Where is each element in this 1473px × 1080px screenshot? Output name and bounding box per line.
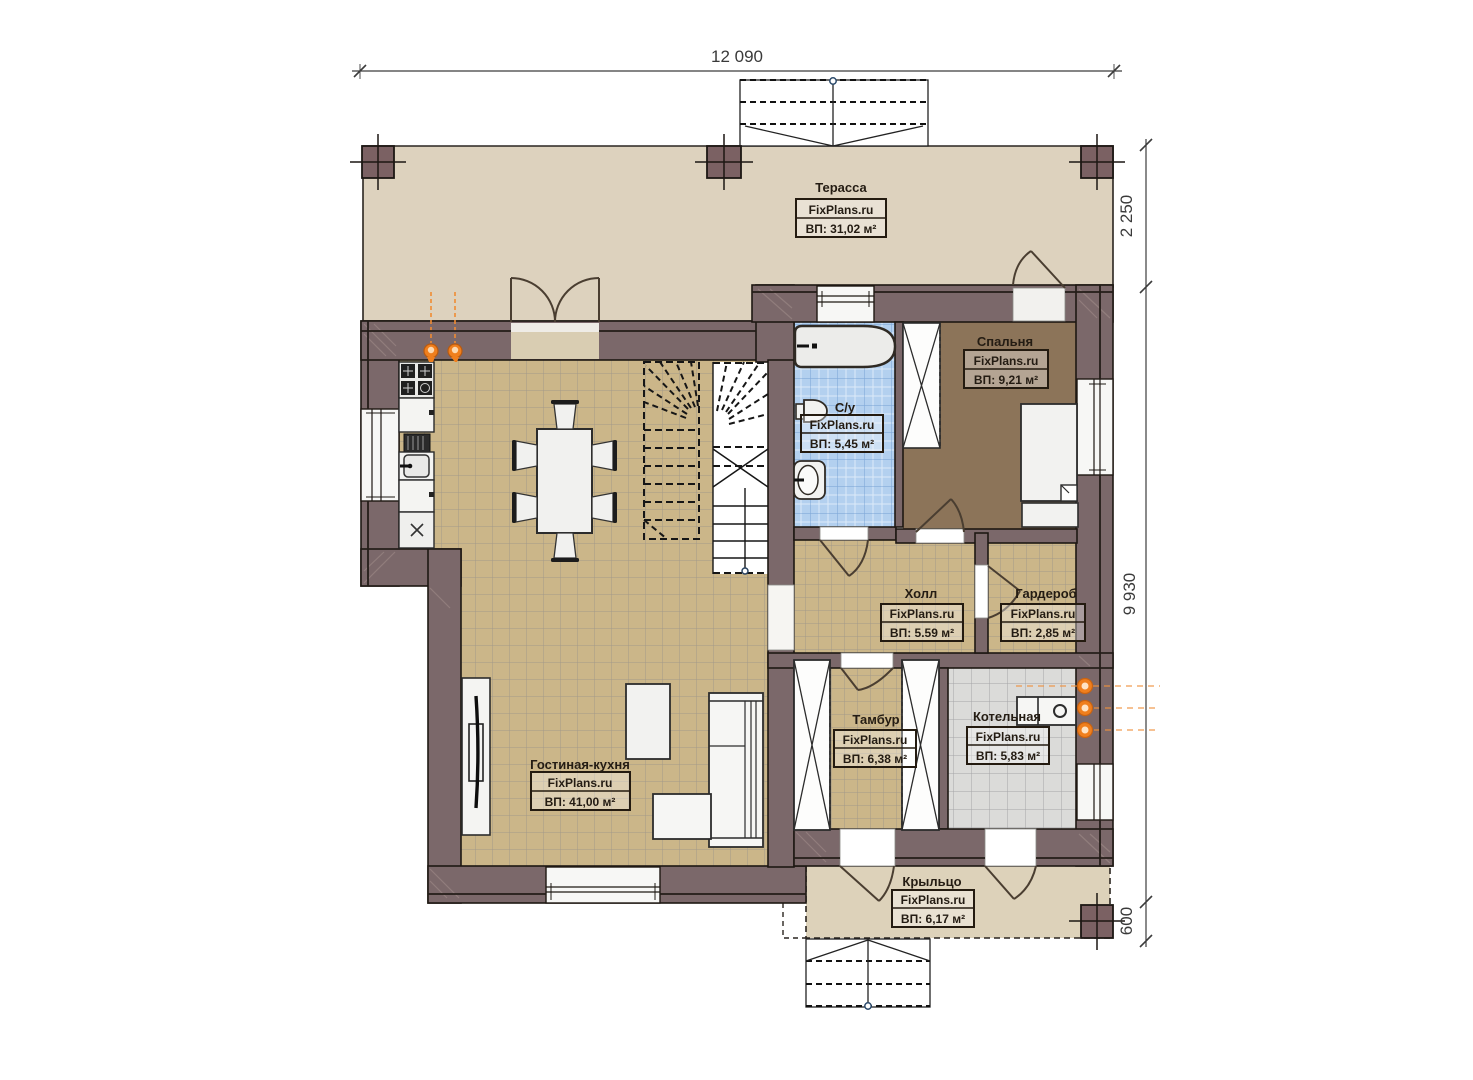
svg-text:2 250: 2 250 — [1117, 195, 1136, 238]
svg-text:ВП: 5.59 м²: ВП: 5.59 м² — [890, 626, 954, 640]
svg-text:Гостиная-кухня: Гостиная-кухня — [530, 757, 630, 772]
svg-text:FixPlans.ru: FixPlans.ru — [890, 607, 955, 621]
svg-text:FixPlans.ru: FixPlans.ru — [548, 776, 613, 790]
svg-text:ВП: 41,00 м²: ВП: 41,00 м² — [545, 795, 616, 809]
svg-text:12 090: 12 090 — [711, 47, 763, 66]
svg-text:ВП: 6,17 м²: ВП: 6,17 м² — [901, 912, 965, 926]
svg-text:FixPlans.ru: FixPlans.ru — [901, 893, 966, 907]
svg-text:Гардероб: Гардероб — [1015, 586, 1076, 601]
svg-text:FixPlans.ru: FixPlans.ru — [810, 418, 875, 432]
svg-text:ВП: 5,45 м²: ВП: 5,45 м² — [810, 437, 874, 451]
svg-text:FixPlans.ru: FixPlans.ru — [843, 733, 908, 747]
svg-text:ВП: 9,21 м²: ВП: 9,21 м² — [974, 373, 1038, 387]
svg-text:Холл: Холл — [905, 586, 938, 601]
svg-text:ВП: 31,02 м²: ВП: 31,02 м² — [806, 222, 877, 236]
svg-text:600: 600 — [1117, 907, 1136, 935]
svg-text:Крыльцо: Крыльцо — [902, 874, 961, 889]
svg-text:FixPlans.ru: FixPlans.ru — [976, 730, 1041, 744]
svg-text:ВП: 6,38 м²: ВП: 6,38 м² — [843, 752, 907, 766]
svg-text:ВП: 5,83 м²: ВП: 5,83 м² — [976, 749, 1040, 763]
svg-text:FixPlans.ru: FixPlans.ru — [809, 203, 874, 217]
svg-text:С/у: С/у — [835, 400, 856, 415]
svg-text:Котельная: Котельная — [973, 709, 1041, 724]
svg-text:Терасса: Терасса — [815, 180, 867, 195]
svg-text:ВП: 2,85 м²: ВП: 2,85 м² — [1011, 626, 1075, 640]
svg-text:FixPlans.ru: FixPlans.ru — [974, 354, 1039, 368]
svg-text:Тамбур: Тамбур — [852, 712, 899, 727]
svg-text:9 930: 9 930 — [1120, 573, 1139, 616]
svg-text:Спальня: Спальня — [977, 334, 1033, 349]
svg-text:FixPlans.ru: FixPlans.ru — [1011, 607, 1076, 621]
